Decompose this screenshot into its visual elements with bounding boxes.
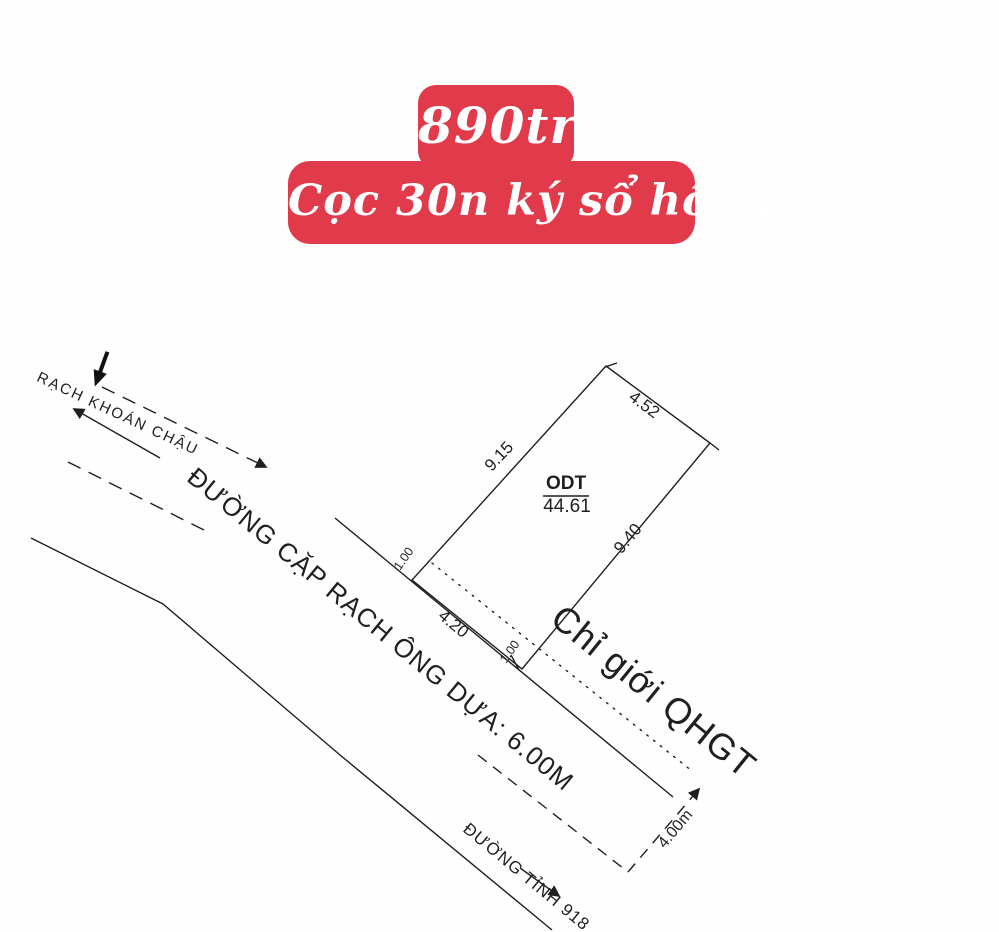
planning-boundary-label: Chỉ giới QHGT xyxy=(544,596,765,786)
provincial-road-label: ĐƯỜNG TỈNH 918 xyxy=(459,819,593,932)
corridor-width-label: 4.00m xyxy=(655,807,697,852)
setback-right-label: 1.00 xyxy=(497,638,522,666)
dim-right-label: 9.40 xyxy=(610,520,646,558)
canal-bank-dashed-line-lower xyxy=(68,462,210,533)
setback-left-label: 1.00 xyxy=(391,545,416,573)
land-listing-image: 890tr Cọc 30n ký sổ hồng xyxy=(0,0,999,932)
canal-label: RẠCH KHOÁN CHẬU xyxy=(34,369,201,459)
corner-tick-east xyxy=(710,443,719,450)
dim-top-label: 4.52 xyxy=(625,387,663,422)
dim-front-label: 4.20 xyxy=(435,606,473,642)
north-arrow-icon xyxy=(88,349,114,389)
parcel-area-label: 44.61 xyxy=(543,496,591,517)
corner-tick-north xyxy=(605,363,617,367)
land-use-code-label: ODT xyxy=(546,473,587,494)
side-road-label: ĐƯỜNG CẶP RẠCH ÔNG DỰA: 6.00M xyxy=(182,461,580,797)
survey-drawing: RẠCH KHOÁN CHẬU ĐƯỜNG CẶP RẠCH ÔNG DỰA: … xyxy=(0,0,999,932)
